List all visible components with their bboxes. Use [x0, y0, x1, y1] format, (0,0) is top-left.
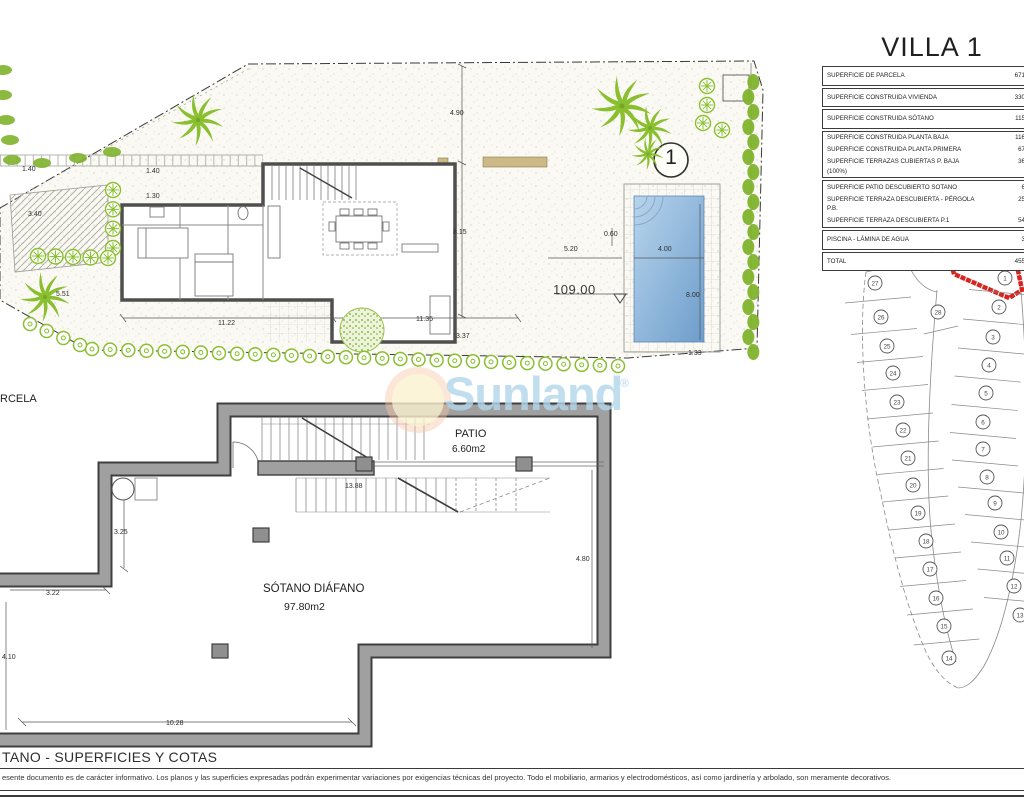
- basement-lower-stairs: [296, 478, 550, 512]
- surface-table-group: SUPERFICIE PATIO DESCUBIERTO SOTANO6SUPE…: [822, 180, 1024, 228]
- surface-table-group: SUPERFICIE DE PARCELA671: [822, 66, 1024, 86]
- surface-table-row: SUPERFICIE TERRAZA DESCUBIERTA P.154: [823, 215, 1024, 227]
- surface-table-row: PISCINA - LÁMINA DE AGUA3: [823, 231, 1024, 249]
- sun-logo-icon: [392, 374, 444, 426]
- patio-area: 6.60m2: [452, 444, 485, 455]
- surface-label: SUPERFICIE CONSTRUIDA VIVIENDA: [827, 93, 937, 103]
- surface-table-row: SUPERFICIE CONSTRUIDA SÓTANO115: [823, 110, 1024, 128]
- plot-number: 4: [987, 362, 991, 369]
- surface-table-row: SUPERFICIE CONSTRUIDA PLANTA PRIMERA67: [823, 144, 1024, 156]
- plot-number: 9: [993, 500, 997, 507]
- surface-value: 25: [979, 195, 1024, 214]
- surface-table-row: SUPERFICIE DE PARCELA671: [823, 67, 1024, 85]
- dimension-label: 3.22: [46, 590, 60, 597]
- disclaimer-text: esente documento es de carácter informat…: [2, 773, 1022, 782]
- plot-number: 13: [1016, 612, 1024, 619]
- surface-value: 115: [979, 114, 1024, 124]
- surface-table-row: SUPERFICIE TERRAZAS CUBIERTAS P. BAJA (1…: [823, 156, 1024, 178]
- dimension-label: 1.40: [146, 168, 160, 175]
- dimension-label: 10.28: [166, 720, 184, 727]
- dimension-label: 0.60: [604, 231, 618, 238]
- registered-mark: ®: [620, 376, 629, 390]
- plot-number: 5: [984, 390, 988, 397]
- plot-number: 20: [909, 482, 917, 489]
- divider: [0, 790, 1024, 791]
- plot-number: 25: [883, 343, 891, 350]
- surface-label: SUPERFICIE TERRAZA DESCUBIERTA - PÉRGOLA…: [827, 195, 979, 214]
- surface-value: 6: [979, 183, 1024, 193]
- basement-door: [233, 442, 259, 468]
- surface-table-group: SUPERFICIE CONSTRUIDA PLANTA BAJA116SUPE…: [822, 131, 1024, 179]
- plot-number: 26: [877, 314, 885, 321]
- watermark: Sunland ®: [388, 364, 648, 440]
- surface-value: 455: [979, 257, 1024, 267]
- site-plan: [0, 61, 763, 373]
- sheet-bottom-border: [0, 795, 1024, 797]
- surface-table-row: SUPERFICIE TERRAZA DESCUBIERTA - PÉRGOLA…: [823, 193, 1024, 215]
- surface-table-group: PISCINA - LÁMINA DE AGUA3: [822, 230, 1024, 250]
- section-title: TANO - SUPERFICIES Y COTAS: [2, 749, 217, 765]
- dimension-label: 8.00: [686, 292, 700, 299]
- plot-location-map: 2726252423222120191817161514281234567891…: [845, 252, 1024, 688]
- dimension-label: 4.80: [576, 556, 590, 563]
- dimension-label: 4.00: [658, 246, 672, 253]
- dimension-label: 5.51: [56, 291, 70, 298]
- basement-room-area: 97.80m2: [284, 601, 325, 613]
- plan-sheet: 2726252423222120191817161514281234567891…: [0, 0, 1024, 800]
- plot-number: 27: [871, 280, 879, 287]
- plot-number: 10: [997, 529, 1005, 536]
- surface-label: SUPERFICIE DE PARCELA: [827, 71, 905, 81]
- surface-label: SUPERFICIE CONSTRUIDA PLANTA BAJA: [827, 133, 949, 143]
- plot-number: 11: [1004, 555, 1011, 562]
- plot-number: 7: [981, 446, 985, 453]
- plot-number: 14: [945, 655, 953, 662]
- basement-plan: [0, 410, 604, 740]
- dimension-label: 1.40: [22, 166, 36, 173]
- plot-number: 8: [985, 474, 989, 481]
- plot-number: 15: [940, 623, 948, 630]
- dimension-label: 4.90: [450, 110, 464, 117]
- surface-value: 330: [979, 93, 1024, 103]
- dimension-label: 5.20: [564, 246, 578, 253]
- surface-table-group: SUPERFICIE CONSTRUIDA SÓTANO115: [822, 109, 1024, 129]
- surface-value: 671: [979, 71, 1024, 81]
- villa-title: VILLA 1: [832, 32, 1024, 63]
- surface-value: 116: [979, 133, 1024, 143]
- plot-number: 3: [991, 334, 995, 341]
- plot-number: 6: [981, 419, 985, 426]
- plot-number: 28: [934, 309, 942, 316]
- plot-number: 16: [932, 595, 940, 602]
- surface-label: SUPERFICIE PATIO DESCUBIERTO SOTANO: [827, 183, 957, 193]
- plot-number: 18: [922, 538, 930, 545]
- plot-number: 22: [899, 427, 907, 434]
- dimension-label: 3.40: [28, 211, 42, 218]
- dimension-label: 1.30: [146, 193, 160, 200]
- dimension-label: 1.33: [688, 350, 702, 357]
- dimension-label: 3.25: [114, 529, 128, 536]
- pool-water: [634, 196, 704, 342]
- dimension-label: 3.37: [456, 333, 470, 340]
- plot-number: 21: [904, 455, 912, 462]
- surface-table-row: SUPERFICIE CONSTRUIDA VIVIENDA330: [823, 89, 1024, 107]
- surface-value: 36: [979, 157, 1024, 176]
- surface-table-group: SUPERFICIE CONSTRUIDA VIVIENDA330: [822, 88, 1024, 108]
- kitchen-counter: [268, 206, 280, 258]
- surface-label: PISCINA - LÁMINA DE AGUA: [827, 235, 909, 245]
- dimension-label: 8.15: [453, 229, 467, 236]
- surface-table-row: SUPERFICIE PATIO DESCUBIERTO SOTANO6: [823, 181, 1024, 193]
- watermark-text: Sunland: [444, 366, 622, 421]
- dimension-label: 4.10: [2, 654, 16, 661]
- surface-table: SUPERFICIE DE PARCELA671SUPERFICIE CONST…: [822, 66, 1024, 273]
- plot-number: 1: [1003, 275, 1007, 282]
- dimension-label: 13.88: [345, 483, 363, 490]
- surface-value: 3: [979, 235, 1024, 245]
- round-bush: [340, 308, 384, 352]
- plot-number: 23: [893, 399, 901, 406]
- dimension-label: 109.00: [553, 282, 596, 297]
- plot-number: 24: [889, 370, 897, 377]
- surface-label: TOTAL: [827, 257, 846, 267]
- pool: [624, 184, 720, 352]
- parcel-label-fragment: RCELA: [0, 393, 37, 405]
- plot-number: 19: [914, 510, 922, 517]
- surface-value: 54: [979, 216, 1024, 226]
- surface-label: SUPERFICIE TERRAZA DESCUBIERTA P.1: [827, 216, 949, 226]
- plot-number: 12: [1010, 583, 1018, 590]
- surface-value: 67: [979, 145, 1024, 155]
- surface-label: SUPERFICIE CONSTRUIDA PLANTA PRIMERA: [827, 145, 961, 155]
- basement-room-label: SÓTANO DIÁFANO: [263, 583, 364, 595]
- villa-marker-number: 1: [663, 146, 679, 170]
- surface-label: SUPERFICIE CONSTRUIDA SÓTANO: [827, 114, 934, 124]
- dimension-label: 11.22: [218, 320, 235, 327]
- surface-table-group: TOTAL455: [822, 252, 1024, 272]
- plot-number: 17: [926, 566, 934, 573]
- dimension-label: 11.35: [416, 316, 433, 323]
- surface-label: SUPERFICIE TERRAZAS CUBIERTAS P. BAJA (1…: [827, 157, 979, 176]
- surface-table-row: SUPERFICIE CONSTRUIDA PLANTA BAJA116: [823, 132, 1024, 144]
- surface-table-row: TOTAL455: [823, 253, 1024, 271]
- divider: [0, 768, 1024, 769]
- patio-label: PATIO: [455, 428, 486, 440]
- plot-number: 2: [997, 304, 1001, 311]
